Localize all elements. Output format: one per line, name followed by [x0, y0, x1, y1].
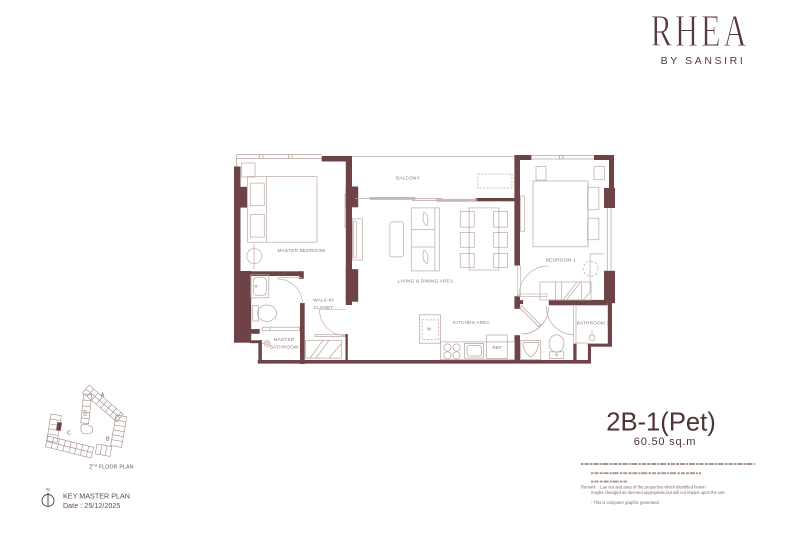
- svg-text:B: B: [106, 437, 110, 443]
- svg-text:WALK-IN: WALK-IN: [313, 298, 334, 303]
- svg-text:MASTER BEDROOM: MASTER BEDROOM: [277, 248, 325, 253]
- svg-text:BALCONY: BALCONY: [396, 176, 420, 181]
- svg-text:60.50 sq.m: 60.50 sq.m: [634, 436, 696, 448]
- svg-text:(D): (D): [83, 409, 88, 416]
- svg-text:BEDROOM 1: BEDROOM 1: [546, 257, 576, 262]
- svg-text:RHEA: RHEA: [651, 5, 750, 56]
- svg-text:W: W: [427, 327, 432, 332]
- svg-text:Date : 25/12/2025: Date : 25/12/2025: [63, 503, 120, 510]
- svg-text:N: N: [46, 487, 49, 492]
- svg-text:A: A: [101, 393, 105, 399]
- svg-text:BATHROOM 1: BATHROOM 1: [577, 320, 610, 325]
- svg-text:: This is computer graphic gen: : This is computer graphic generated: [591, 500, 660, 505]
- svg-text:REF: REF: [492, 345, 502, 350]
- svg-text:C: C: [67, 431, 71, 437]
- svg-text:2nd FLOOR PLAN: 2nd FLOOR PLAN: [89, 464, 134, 471]
- svg-text:MASTER: MASTER: [274, 337, 295, 342]
- svg-text:BY SANSIRI: BY SANSIRI: [661, 55, 746, 67]
- svg-text:KITCHEN AREA: KITCHEN AREA: [453, 320, 490, 325]
- svg-text:maybe changed as deemed approp: maybe changed as deemed appropriate,but …: [591, 490, 726, 495]
- svg-text:LIVING & DINING AREA: LIVING & DINING AREA: [398, 278, 454, 283]
- svg-text:CLOSET: CLOSET: [314, 305, 334, 310]
- svg-text:BATHROOM: BATHROOM: [270, 345, 298, 350]
- svg-text:KEY MASTER PLAN: KEY MASTER PLAN: [63, 492, 130, 501]
- svg-text:2B-1(Pet): 2B-1(Pet): [606, 409, 716, 437]
- svg-text:Remark : Lay out and area of: Remark : Lay out and area of the propert…: [581, 484, 706, 489]
